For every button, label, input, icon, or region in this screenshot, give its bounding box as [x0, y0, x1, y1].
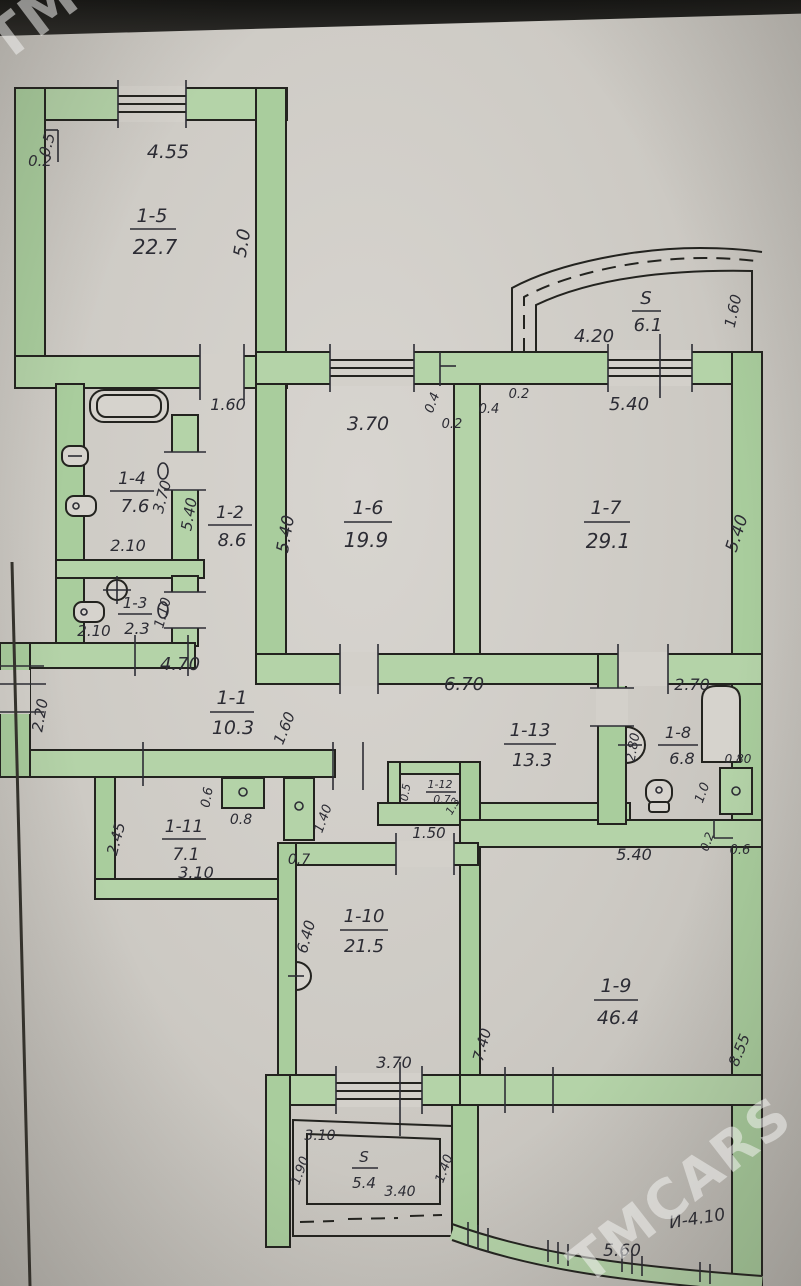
dim-label: 0.6 — [198, 786, 216, 809]
shower-tray-1-8 — [720, 768, 752, 814]
room-id: 1-12 — [428, 778, 453, 791]
dim-label: 3.10 — [304, 1128, 335, 1144]
toilet-1-4 — [66, 496, 96, 516]
dim-label: 1.40 — [312, 803, 336, 835]
balcony-top-outline — [512, 248, 762, 352]
room-area: 10.3 — [212, 717, 254, 739]
dim-label: 5.40 — [609, 394, 649, 415]
dim-label: 0.5 — [398, 783, 414, 802]
dim-label: 6.70 — [444, 674, 484, 695]
dim-label: 3.70 — [376, 1053, 412, 1072]
dim-label: 3.70 — [347, 413, 389, 435]
room-id: 1-8 — [665, 723, 691, 742]
room-area: 6.8 — [669, 749, 694, 768]
room-id: 1-2 — [216, 503, 244, 523]
dim-label: 0.2 — [509, 387, 530, 402]
dim-label: 4.55 — [147, 141, 189, 163]
toilet-1-8-base — [649, 802, 669, 812]
dim-label: 0.8 — [230, 812, 252, 828]
wall-segment — [452, 1105, 478, 1235]
dim-label: 0.4 — [479, 402, 500, 417]
room-id: 1-4 — [118, 469, 146, 489]
wall-segment — [266, 1075, 290, 1247]
floorplan-photo: 4.55 0.2 0.5 1-5 22.7 5.0 S 6.1 4.20 1.6… — [0, 0, 801, 1286]
bathtub-inner — [97, 395, 161, 417]
room-area: 29.1 — [586, 529, 631, 553]
room-id: 1-7 — [590, 497, 621, 519]
room-id: 1-13 — [510, 720, 551, 741]
dim-label: 2.10 — [77, 622, 110, 640]
room-area: 7.6 — [121, 496, 150, 517]
dim-label: 1.60 — [270, 709, 299, 747]
dim-label: И-4.10 — [668, 1205, 727, 1234]
room-area: 5.4 — [352, 1174, 376, 1192]
toilet-1-3 — [74, 602, 104, 622]
cabinet-a — [222, 778, 264, 808]
room-id: 1-10 — [344, 906, 385, 927]
wall-segment — [30, 750, 335, 777]
dim-label: 4.20 — [574, 326, 614, 347]
room-area: 6.1 — [634, 315, 663, 336]
dim-label: 2.10 — [110, 536, 146, 555]
dim-label: 0.4 — [422, 391, 443, 416]
room-area: 21.5 — [344, 936, 384, 957]
room-area: 7.1 — [172, 845, 199, 865]
room-id: 1-11 — [165, 817, 204, 837]
dim-label: 0.6 — [730, 843, 751, 858]
dim-label: 4.70 — [160, 654, 200, 675]
cabinet-b — [284, 778, 314, 840]
wall-segment — [172, 415, 198, 576]
dim-label: 1.60 — [210, 395, 246, 414]
dim-label: 6.40 — [293, 918, 319, 955]
dim-label: 2.70 — [674, 675, 710, 694]
dim-label: 2.20 — [28, 697, 52, 733]
room-area: 8.6 — [218, 530, 247, 551]
dim-label: 0.80 — [725, 752, 752, 766]
toilet-1-8 — [646, 780, 672, 804]
dim-label: 5.0 — [230, 227, 256, 259]
room-area: 19.9 — [344, 528, 389, 552]
wall-segment — [278, 843, 296, 1097]
dim-label: 3.10 — [178, 863, 214, 882]
room-id: S — [359, 1148, 369, 1166]
room-id: 1-3 — [123, 594, 148, 612]
room-id: 1-6 — [352, 497, 383, 519]
dim-label: 1.50 — [412, 824, 445, 842]
dim-label: 3.40 — [384, 1184, 415, 1200]
dim-label: 1.0 — [692, 781, 713, 806]
room-id: 1-5 — [136, 205, 167, 227]
room-id: 1-1 — [216, 687, 247, 709]
room-area: 13.3 — [512, 750, 552, 771]
dim-label: 0.2 — [442, 417, 463, 432]
shower-1-8 — [702, 686, 740, 762]
wall-segment — [95, 879, 285, 899]
floorplan-drawing: 4.55 0.2 0.5 1-5 22.7 5.0 S 6.1 4.20 1.6… — [0, 0, 801, 1286]
dim-label: 5.40 — [616, 845, 652, 864]
room-area: 2.3 — [124, 619, 149, 638]
dim-label: 5.60 — [603, 1241, 641, 1261]
room-area: 46.4 — [597, 1007, 639, 1029]
room-area: 22.7 — [133, 235, 178, 259]
room-id: 1-9 — [600, 975, 631, 997]
dim-label: 1.60 — [721, 293, 746, 329]
dim-label: 0.7 — [288, 852, 310, 868]
room-id: S — [640, 288, 651, 309]
